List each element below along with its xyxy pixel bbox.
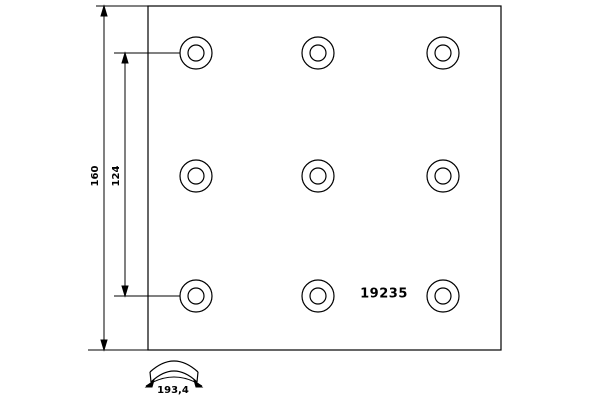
section-end-cap-left [150,372,151,382]
part-number-label: 19235 [360,288,408,301]
arrowhead-up [122,53,128,63]
technical-drawing-canvas: 160 124 19235 193,4 [0,0,600,400]
section-view-curved-lining [150,361,198,382]
section-end-cap-right [197,372,198,382]
drawing-geometry [0,0,600,400]
section-outer-arc [150,361,198,372]
arrowhead-down [122,286,128,296]
arrowhead-up [101,6,107,16]
dim-label-hole-spacing: 124 [112,166,122,187]
dim-label-arc-width: 193,4 [157,386,189,396]
arrowhead-right [194,380,202,387]
arrowhead-left [146,380,154,387]
arrowhead-down [101,340,107,350]
dim-label-overall-width: 160 [91,166,101,187]
